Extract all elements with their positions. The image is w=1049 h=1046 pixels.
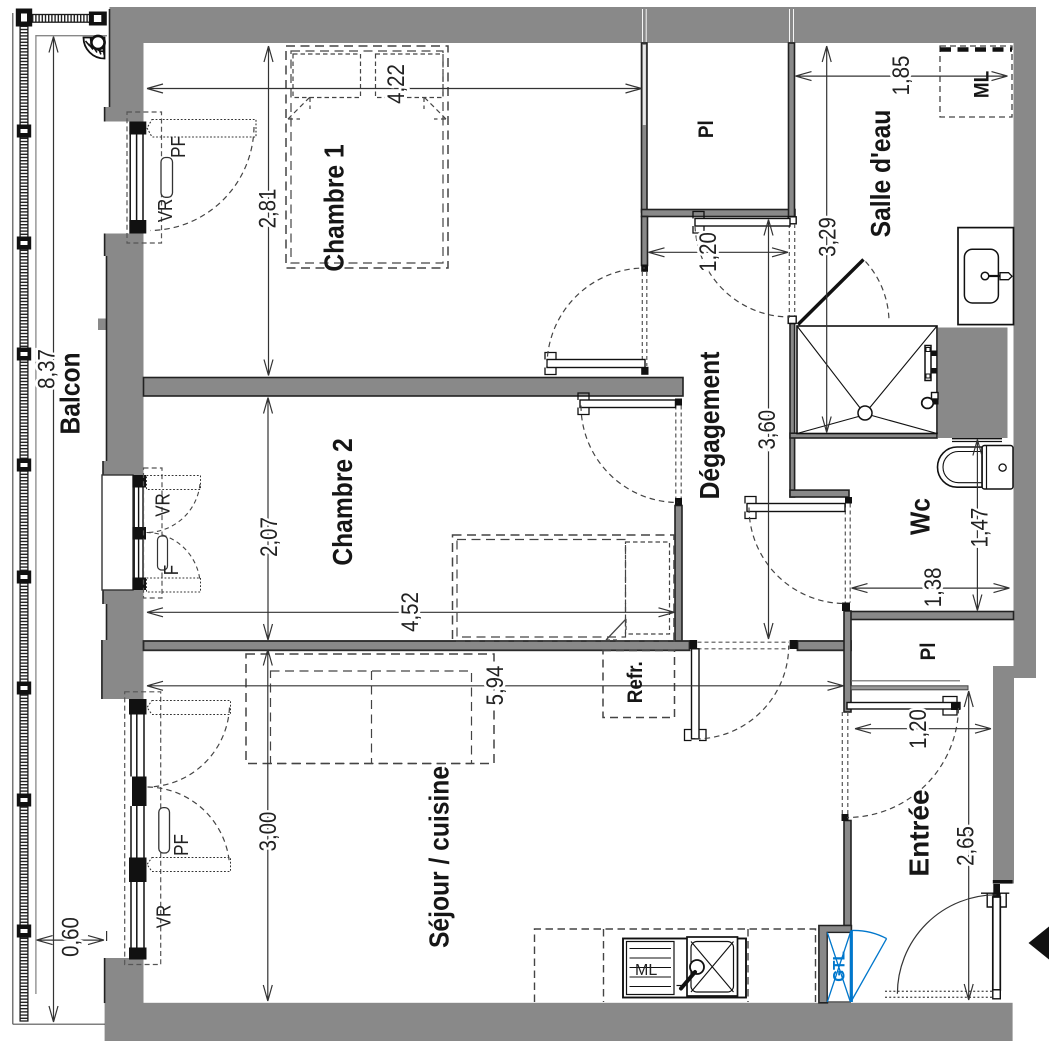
svg-text:0,60: 0,60: [57, 917, 84, 957]
svg-text:Chambre 1: Chambre 1: [318, 144, 350, 271]
svg-text:2,81: 2,81: [254, 189, 281, 229]
svg-text:ML: ML: [970, 71, 993, 98]
svg-text:Pl: Pl: [917, 642, 940, 660]
svg-text:Wc: Wc: [904, 498, 936, 535]
svg-text:F: F: [160, 565, 183, 575]
svg-text:4,52: 4,52: [397, 592, 424, 632]
svg-text:PF: PF: [170, 834, 193, 856]
svg-text:3,00: 3,00: [255, 812, 282, 852]
svg-text:4,22: 4,22: [383, 64, 410, 104]
svg-text:1,38: 1,38: [919, 568, 946, 608]
svg-text:VR: VR: [151, 493, 174, 517]
svg-text:8,37: 8,37: [33, 349, 60, 389]
svg-text:3,60: 3,60: [753, 410, 780, 450]
svg-text:GTL: GTL: [830, 951, 849, 982]
svg-text:VR: VR: [154, 199, 177, 223]
svg-text:Pl: Pl: [695, 120, 718, 138]
svg-text:5,94: 5,94: [482, 666, 509, 706]
svg-text:1,85: 1,85: [888, 56, 915, 96]
svg-text:Refr.: Refr.: [624, 661, 647, 703]
svg-text:ML: ML: [635, 962, 657, 979]
svg-text:1,47: 1,47: [966, 508, 993, 548]
svg-text:Dégagement: Dégagement: [694, 351, 726, 499]
svg-text:Entrée: Entrée: [904, 789, 935, 876]
svg-text:Séjour / cuisine: Séjour / cuisine: [423, 766, 455, 948]
svg-text:VR: VR: [152, 905, 175, 929]
svg-text:Salle d'eau: Salle d'eau: [865, 110, 897, 238]
svg-text:3,29: 3,29: [814, 217, 841, 257]
svg-text:PF: PF: [167, 136, 190, 158]
svg-text:2,07: 2,07: [256, 517, 283, 557]
svg-text:1,20: 1,20: [905, 709, 932, 749]
svg-text:1,20: 1,20: [695, 232, 722, 272]
svg-text:Chambre 2: Chambre 2: [327, 438, 359, 565]
svg-text:2,65: 2,65: [952, 826, 979, 866]
